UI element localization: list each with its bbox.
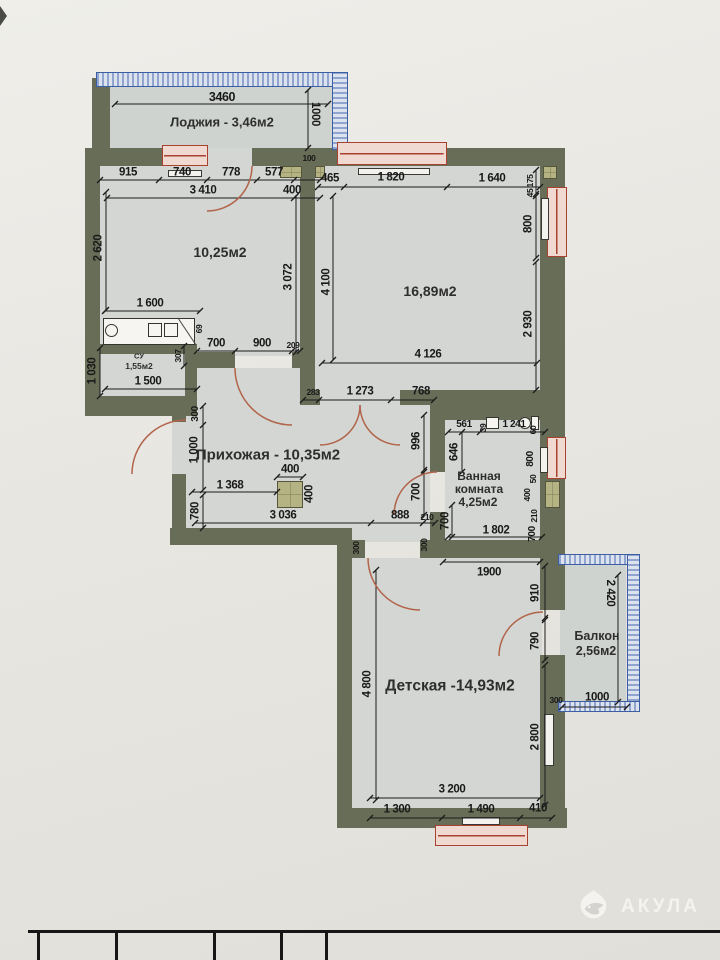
room-label-balcony-2: 2,56м2 — [576, 645, 617, 658]
dim-label: 996 — [411, 432, 423, 450]
dim-label: 1000 — [585, 692, 609, 704]
shark-logo-icon — [575, 888, 613, 926]
dim-label: 910 — [530, 584, 542, 602]
dim-label: 700 — [528, 526, 538, 542]
dim-label: 400 — [283, 185, 301, 197]
dim-label: 900 — [253, 338, 271, 350]
room-label-bath-3: 4,25м2 — [459, 496, 498, 508]
washbasin-icon — [486, 417, 499, 429]
dim-label: 3 410 — [190, 185, 217, 197]
dim-label: 561 — [456, 420, 472, 430]
dim-label: 700 — [207, 338, 225, 350]
dim-label: 1900 — [477, 567, 501, 579]
burner-icon — [105, 324, 118, 337]
vent-shaft — [280, 166, 302, 178]
dim-label: 915 — [119, 167, 137, 179]
wall-segment — [172, 416, 186, 422]
dim-label: 1 273 — [347, 386, 374, 398]
dim-label: 175 — [526, 175, 535, 188]
vent-shaft — [545, 481, 560, 508]
dim-label: 780 — [190, 502, 202, 520]
dim-label: 39 — [479, 424, 488, 433]
dim-label: 1 802 — [483, 525, 510, 537]
dim-label: 410 — [529, 803, 547, 815]
dim-label: 1 820 — [378, 172, 405, 184]
photo-corner-artifact — [0, 6, 7, 26]
dim-label: 888 — [391, 510, 409, 522]
dim-label: 800 — [523, 215, 535, 233]
dim-label: 300 — [191, 406, 201, 422]
room-label-bath-1: Ванная — [457, 470, 501, 482]
dim-label: 50 — [529, 475, 538, 484]
room-label-su-area: 1,55м2 — [125, 362, 153, 371]
room-label-room1: 10,25м2 — [193, 245, 246, 259]
dim-label: 210 — [421, 513, 434, 522]
brand-name: АКУЛА — [621, 896, 700, 918]
window — [337, 142, 447, 165]
dim-label: 778 — [222, 167, 240, 179]
title-block-divider — [280, 933, 283, 960]
room-label-kids: Детская -14,93м2 — [385, 678, 514, 694]
dim-label: 100 — [303, 154, 316, 163]
dim-label: 1 300 — [384, 804, 411, 816]
room-label-balcony-1: Балкон — [574, 630, 619, 643]
room-label-room2: 16,89м2 — [403, 284, 456, 298]
dim-label: 4 800 — [362, 671, 374, 698]
dim-label: 400 — [523, 489, 532, 502]
dim-label: 1 000 — [189, 437, 201, 464]
dim-label: 2 420 — [603, 580, 615, 607]
wall-segment — [292, 352, 300, 368]
sink-icon — [148, 323, 162, 337]
dim-label: 3460 — [209, 91, 235, 104]
dim-label: 300 — [420, 539, 429, 552]
window-sill — [540, 447, 548, 473]
window-sill — [541, 198, 549, 240]
dim-label: 400 — [281, 464, 299, 476]
wall-segment — [430, 405, 445, 472]
dim-label: 209 — [287, 341, 300, 350]
dim-label: 465 — [321, 173, 339, 185]
dim-label: 790 — [530, 632, 542, 650]
sink-icon — [164, 323, 178, 337]
dim-label: 2 800 — [530, 724, 542, 751]
room-label-su-name: СУ — [134, 352, 144, 360]
dim-label: 3 072 — [283, 264, 295, 291]
floor-plan-page: Лоджия - 3,46м2 10,25м2 16,89м2 СУ 1,55м… — [0, 0, 720, 960]
wall-segment — [300, 148, 315, 405]
vent-shaft — [543, 166, 557, 179]
window — [435, 825, 528, 846]
dim-label: 45 — [526, 189, 535, 198]
wall-segment — [172, 474, 186, 528]
wall-segment — [170, 528, 352, 545]
room-label-hall: Прихожая - 10,35м2 — [196, 448, 340, 463]
column-400 — [277, 481, 303, 508]
wall-segment — [197, 352, 235, 368]
dim-label: 400 — [304, 485, 316, 503]
dim-label: 577 — [265, 167, 283, 179]
wall-segment — [540, 558, 565, 610]
dim-label: 2 620 — [93, 235, 105, 262]
dim-label: 210 — [530, 510, 539, 523]
dim-label: 60 — [529, 426, 538, 435]
dim-label: 1000 — [308, 102, 320, 126]
loggia-glazing-top — [96, 72, 348, 87]
dim-label: 300 — [352, 542, 361, 555]
dim-label: 283 — [307, 388, 320, 397]
loggia-glazing-right — [332, 72, 348, 150]
title-block-divider — [115, 933, 118, 960]
dim-label: 1 241 — [502, 420, 525, 430]
wall-segment — [85, 396, 197, 416]
room-label-bath-2: комната — [455, 483, 503, 495]
dim-label: 1 030 — [87, 358, 99, 385]
balcony-glazing-right — [627, 554, 640, 712]
dim-label: 3 036 — [270, 510, 297, 522]
title-block-divider — [213, 933, 216, 960]
window — [162, 145, 208, 166]
dim-label: 700 — [411, 483, 423, 501]
title-block-divider — [325, 933, 328, 960]
dim-label: 3 200 — [439, 784, 466, 796]
dim-label: 646 — [449, 443, 461, 461]
dim-label: 1 600 — [137, 298, 164, 310]
window-sill — [462, 817, 500, 825]
dim-label: 2 930 — [523, 311, 535, 338]
dim-label: 4 126 — [415, 349, 442, 361]
dim-label: 307 — [174, 350, 183, 363]
title-block-top-line — [28, 930, 720, 933]
dim-label: 69 — [195, 325, 204, 334]
dim-label: 768 — [412, 386, 430, 398]
wall-segment — [337, 545, 352, 825]
dim-label: 1 500 — [135, 376, 162, 388]
dim-label: 740 — [173, 167, 191, 179]
dim-label: 1 490 — [468, 804, 495, 816]
dim-label: 4 100 — [321, 269, 333, 296]
dim-label: 300 — [550, 696, 563, 705]
dim-label: 1 640 — [479, 173, 506, 185]
wall-segment — [92, 78, 110, 150]
window-symbol — [544, 714, 554, 766]
window — [547, 187, 567, 257]
title-block-divider — [37, 933, 40, 960]
window — [547, 437, 566, 479]
dim-label: 700 — [440, 512, 452, 530]
dim-label: 1 368 — [217, 480, 244, 492]
dim-label: 800 — [526, 451, 536, 467]
brand-watermark: АКУЛА — [575, 888, 700, 926]
room-label-loggia: Лоджия - 3,46м2 — [170, 116, 274, 129]
